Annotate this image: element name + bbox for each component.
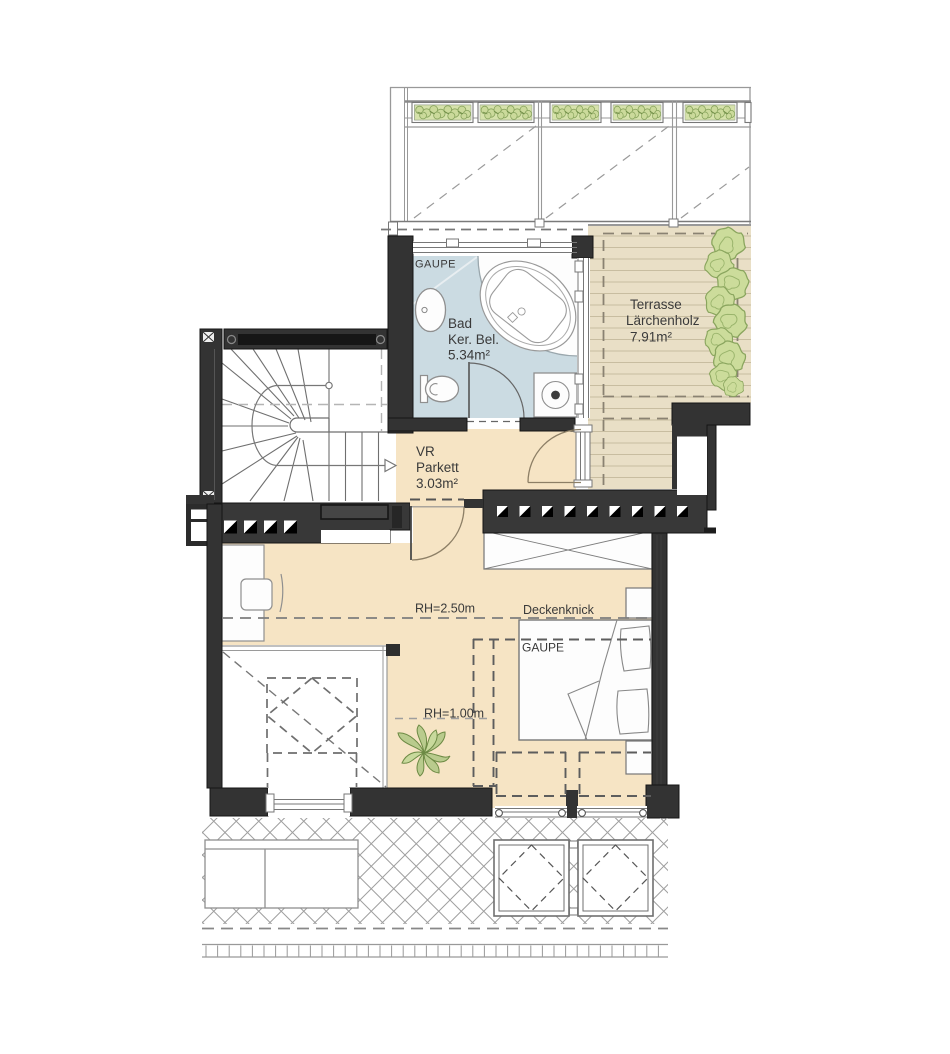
svg-text:Parkett: Parkett bbox=[416, 460, 459, 475]
svg-text:VR: VR bbox=[416, 444, 435, 459]
svg-text:GAUPE: GAUPE bbox=[415, 259, 456, 271]
svg-text:Terrasse: Terrasse bbox=[630, 297, 682, 312]
svg-text:3.03m²: 3.03m² bbox=[416, 476, 459, 491]
svg-text:Deckenknick: Deckenknick bbox=[523, 603, 595, 617]
svg-text:5.34m²: 5.34m² bbox=[448, 348, 491, 363]
svg-text:GAUPE: GAUPE bbox=[522, 641, 564, 655]
svg-text:7.91m²: 7.91m² bbox=[630, 330, 673, 345]
svg-text:RH=1.00m: RH=1.00m bbox=[424, 707, 484, 721]
svg-text:Ker. Bel.: Ker. Bel. bbox=[448, 332, 499, 347]
svg-text:Lärchenholz: Lärchenholz bbox=[626, 313, 700, 328]
svg-text:Bad: Bad bbox=[448, 316, 472, 331]
svg-text:RH=2.50m: RH=2.50m bbox=[415, 602, 475, 616]
